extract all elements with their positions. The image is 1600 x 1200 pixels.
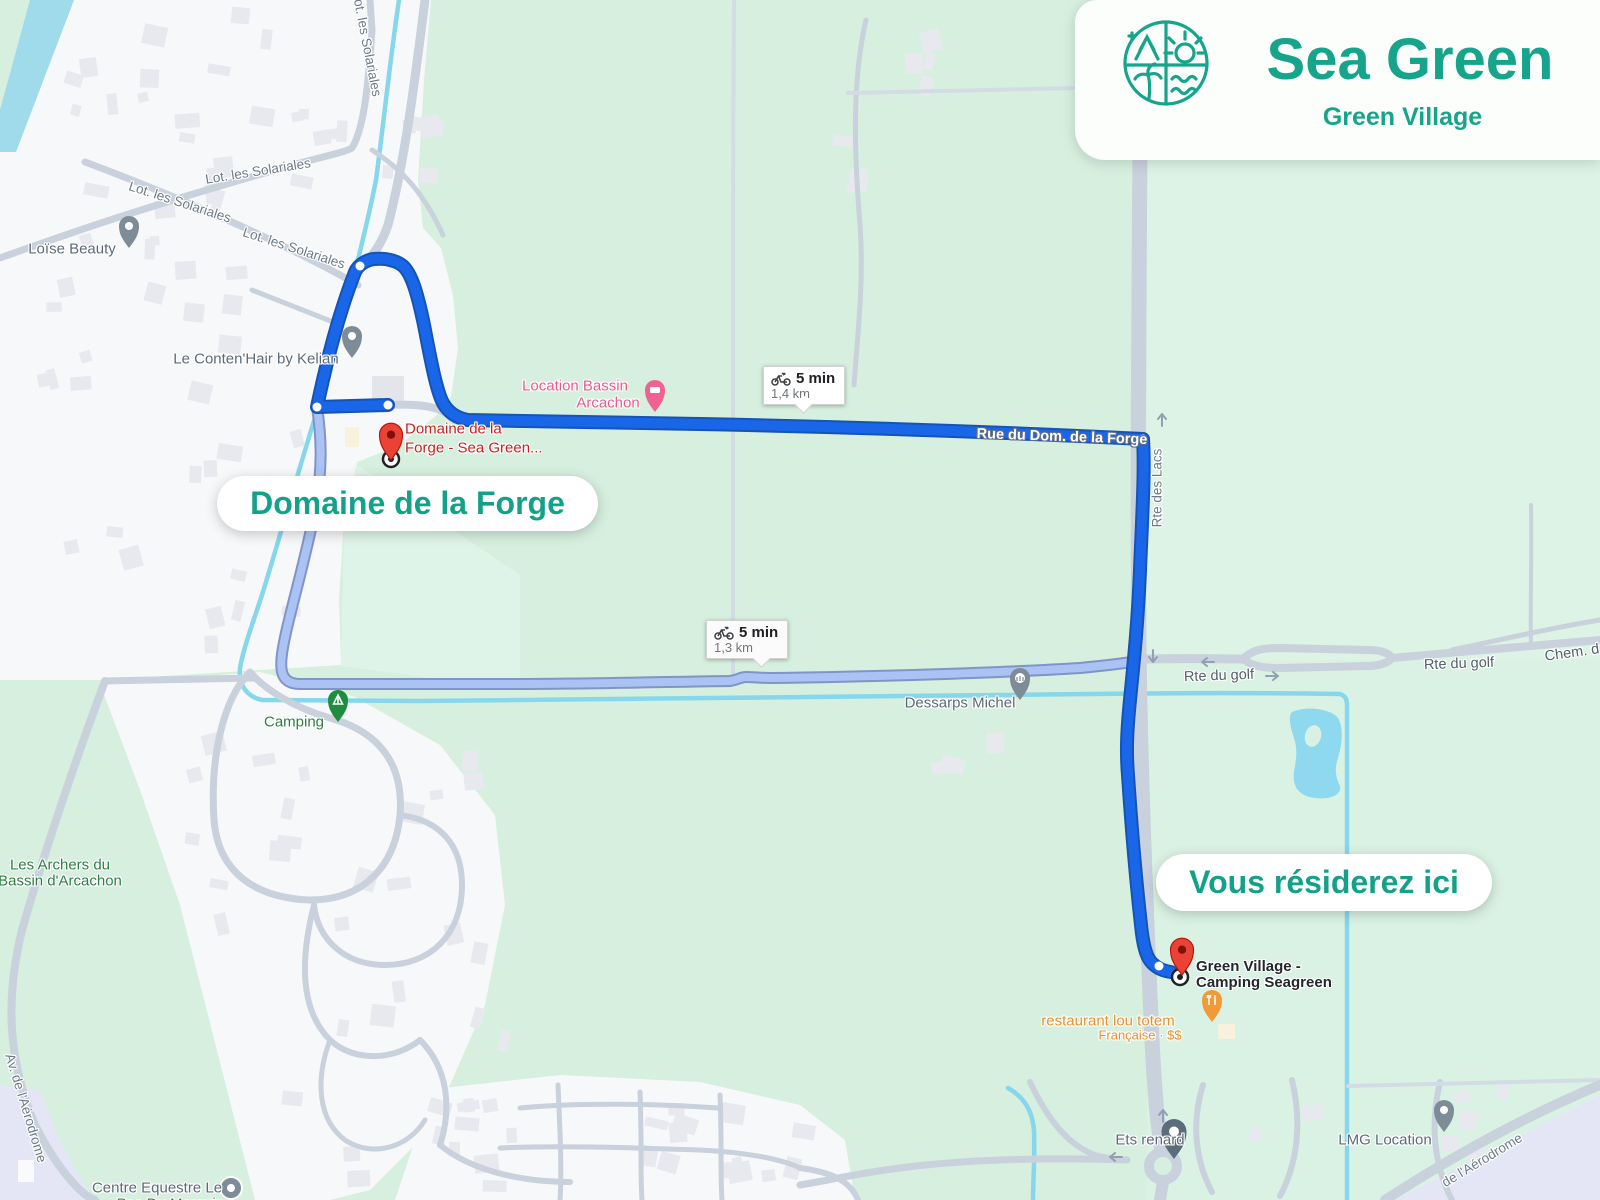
brand-name: Sea Green	[1230, 26, 1590, 93]
sea-green-logo-icon	[1121, 18, 1211, 108]
poi-label-ets-renard[interactable]: Ets renard	[1115, 1132, 1184, 1149]
badge-duration: 5 min	[739, 624, 778, 641]
poi-label-lmg[interactable]: LMG Location	[1338, 1132, 1431, 1149]
destination-callout-text: Vous résiderez ici	[1189, 864, 1459, 901]
route-badge-alternate[interactable]: 5 min 1,3 km	[706, 620, 788, 659]
poi-label-kelian[interactable]: Le Conten'Hair by Kelian	[173, 351, 338, 368]
poi-label-location-bassin-2[interactable]: Arcachon	[576, 395, 639, 412]
poi-label-dessarps[interactable]: Dessarps Michel	[905, 695, 1016, 712]
street-label-rte-du-golf: Rte du golf	[1184, 667, 1255, 685]
street-label-rte-des-lacs: Rte des Lacs	[1150, 449, 1165, 528]
bicycle-icon	[771, 372, 791, 386]
poi-label-equestre-2[interactable]: Pas Du Marquis	[117, 1196, 224, 1200]
destination-marker-label-2[interactable]: Camping Seagreen	[1196, 975, 1332, 991]
badge-duration: 5 min	[796, 370, 835, 387]
origin-marker-label-2[interactable]: Forge - Sea Green...	[405, 439, 543, 458]
poi-label-equestre-1[interactable]: Centre Equestre Le	[92, 1180, 222, 1197]
origin-marker-label-1[interactable]: Domaine de la	[405, 420, 502, 439]
street-label-rte-du-golf-2: Rte du golf	[1424, 655, 1495, 673]
origin-marker	[380, 423, 403, 467]
poi-label-restaurant-sub[interactable]: Française · $$	[1098, 1028, 1181, 1043]
poi-label-archers-1[interactable]: Les Archers du	[10, 857, 110, 874]
pond	[1290, 709, 1342, 799]
bicycle-icon	[714, 626, 734, 640]
map-screenshot: Lot. les Solariales Lot. les Solariales …	[0, 0, 1600, 1200]
origin-callout-pill: Domaine de la Forge	[217, 476, 598, 531]
poi-label-location-bassin[interactable]: Location Bassin	[522, 378, 628, 395]
brand-card: Sea Green Green Village	[1075, 0, 1600, 160]
poi-label-camping[interactable]: Camping	[264, 714, 324, 731]
origin-callout-text: Domaine de la Forge	[250, 485, 565, 522]
destination-marker-label-1[interactable]: Green Village -	[1196, 959, 1301, 975]
poi-label-archers-2[interactable]: Bassin d'Arcachon	[0, 873, 122, 890]
route-badge-primary[interactable]: 5 min 1,4 km	[763, 366, 845, 405]
poi-label-loise-beauty[interactable]: Loïse Beauty	[28, 241, 116, 258]
brand-subtitle: Green Village	[1230, 103, 1575, 132]
destination-callout-pill: Vous résiderez ici	[1156, 854, 1492, 911]
badge-distance: 1,3 km	[714, 640, 778, 655]
